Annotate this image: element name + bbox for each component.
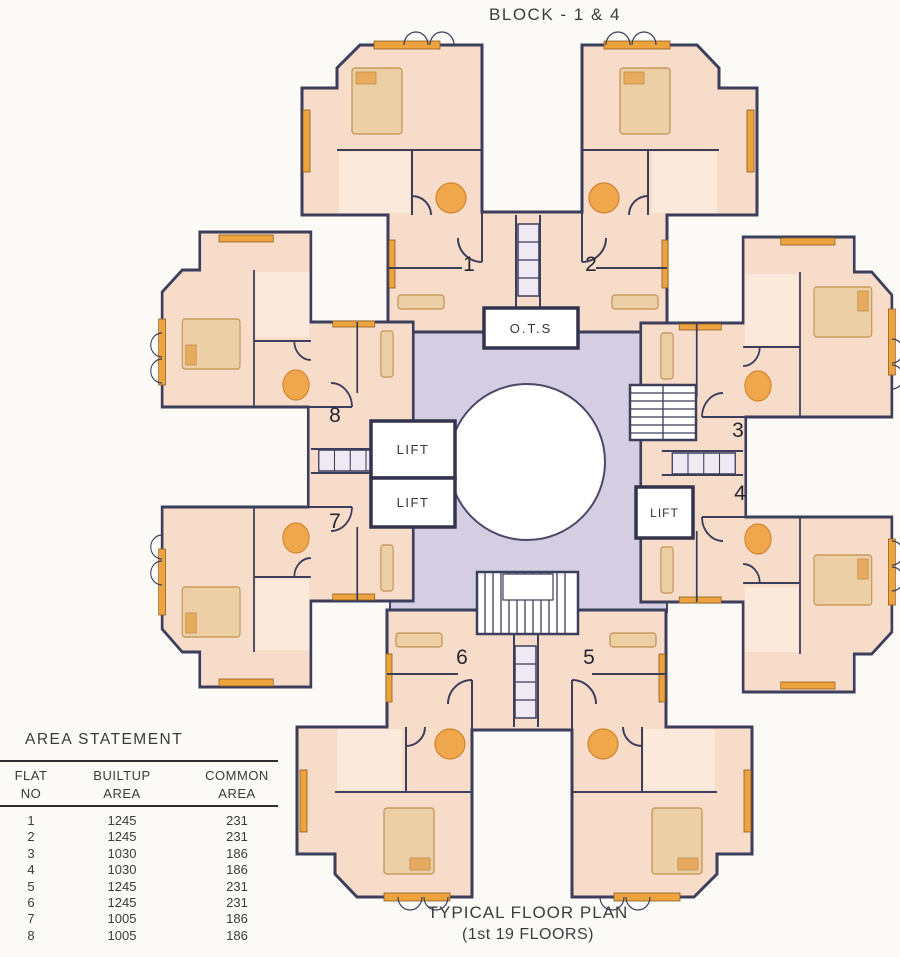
plan-caption-line2: (1st 19 FLOORS) [378, 926, 678, 944]
plan-caption: TYPICAL FLOOR PLAN (1st 19 FLOORS) [378, 903, 678, 944]
col-header-common-area: COMMON AREA [182, 767, 292, 803]
wing-top [302, 32, 757, 332]
area-statement-title: AREA STATEMENT [25, 731, 183, 749]
lift-label-right: LIFT [636, 487, 693, 538]
col-header-builtup-area: BUILTUP AREA [62, 767, 182, 803]
lift-label-lower-left: LIFT [371, 478, 455, 527]
wing-bottom [297, 610, 752, 910]
flat-number-8: 8 [322, 404, 348, 428]
central-courtyard [449, 384, 605, 540]
flat-number-6: 6 [449, 646, 475, 670]
flat-number-5: 5 [576, 646, 602, 670]
table-header-row: FLAT NO BUILTUP AREA COMMON AREA [0, 767, 292, 803]
table-rule-top [0, 760, 278, 762]
table-row: 41030186 [0, 862, 292, 878]
table-rule-bottom [0, 805, 278, 807]
floor-plan-page: BLOCK - 1 & 4 [0, 0, 900, 957]
table-row: 21245231 [0, 829, 292, 845]
ots-label: O.T.S [484, 308, 578, 348]
table-row: 11245231 [0, 813, 292, 829]
wing-right [641, 237, 900, 692]
flat-number-1: 1 [456, 253, 482, 277]
lift-label-upper-left: LIFT [371, 421, 455, 478]
staircase-bottom [477, 572, 578, 634]
table-row: 31030186 [0, 846, 292, 862]
flat-number-7: 7 [322, 510, 348, 534]
plan-caption-line1: TYPICAL FLOOR PLAN [378, 903, 678, 923]
col-header-flat-no: FLAT NO [0, 767, 62, 803]
flat-number-4: 4 [727, 482, 753, 506]
flat-number-2: 2 [578, 253, 604, 277]
staircase-right [630, 385, 696, 440]
table-row: 81005186 [0, 928, 292, 944]
table-row: 61245231 [0, 895, 292, 911]
table-body: 11245231 21245231 31030186 41030186 5124… [0, 813, 292, 944]
table-row: 71005186 [0, 911, 292, 927]
table-row: 51245231 [0, 879, 292, 895]
flat-number-3: 3 [725, 419, 751, 443]
